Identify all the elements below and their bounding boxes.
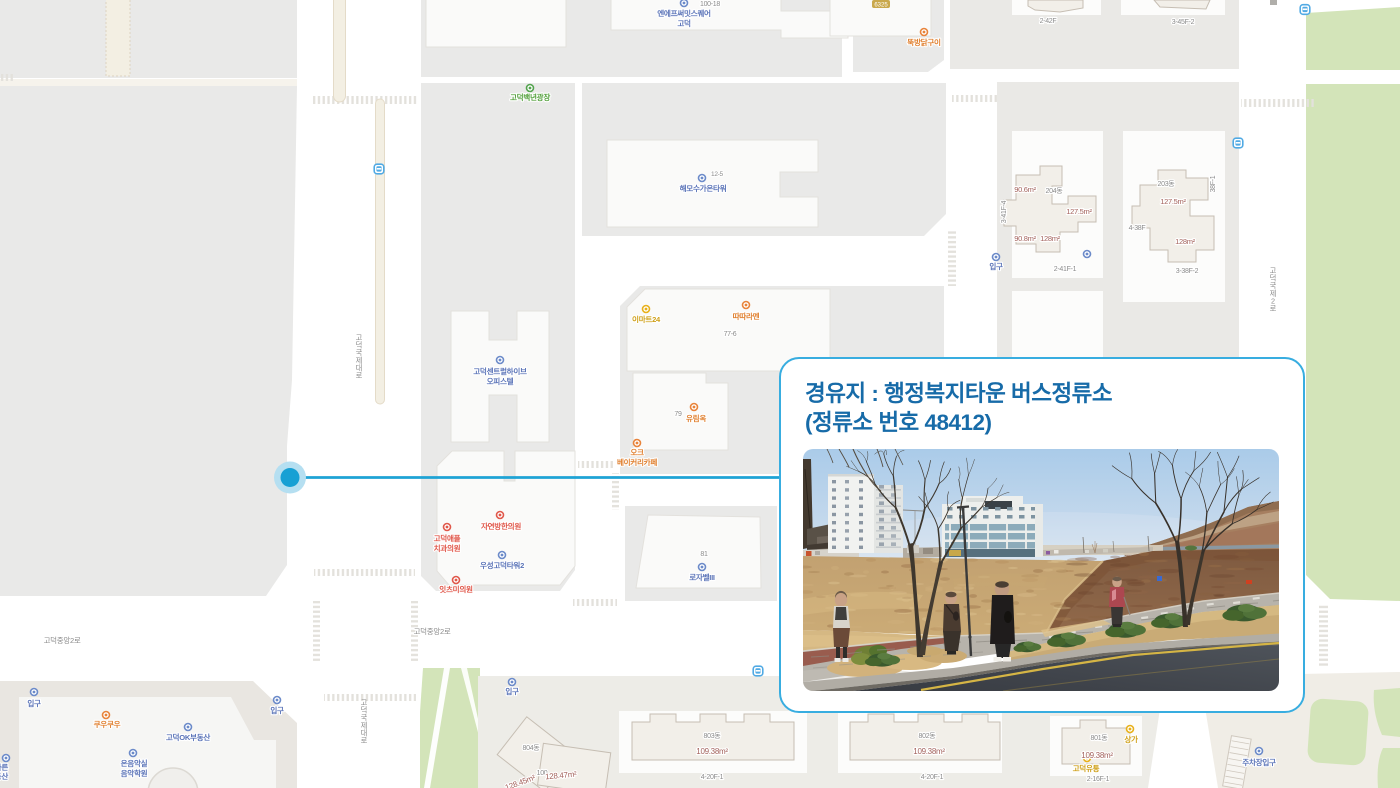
svg-text:베이커리카페: 베이커리카페 xyxy=(617,457,657,467)
svg-text:주차장입구: 주차장입구 xyxy=(1242,757,1276,767)
svg-text:쿠우쿠우: 쿠우쿠우 xyxy=(94,720,121,729)
svg-text:고덕국제대로: 고덕국제대로 xyxy=(356,333,363,380)
svg-text:4-20F-1: 4-20F-1 xyxy=(701,774,724,781)
svg-text:입구: 입구 xyxy=(505,686,519,696)
svg-text:77-6: 77-6 xyxy=(724,331,737,338)
svg-text:고덕애플: 고덕애플 xyxy=(434,533,461,543)
svg-text:801동: 801동 xyxy=(1091,734,1109,742)
svg-text:유림옥: 유림옥 xyxy=(686,413,706,423)
svg-text:치과의원: 치과의원 xyxy=(434,543,461,553)
svg-text:2-16F-1: 2-16F-1 xyxy=(1087,776,1110,783)
svg-text:오피스텔: 오피스텔 xyxy=(487,376,514,386)
svg-text:입구: 입구 xyxy=(989,261,1003,271)
svg-text:109.38m²: 109.38m² xyxy=(913,747,945,756)
svg-text:상가: 상가 xyxy=(1124,734,1138,744)
svg-text:고덕중앙2로: 고덕중앙2로 xyxy=(44,635,81,645)
svg-text:고덕백년광장: 고덕백년광장 xyxy=(510,92,550,102)
svg-text:203동: 203동 xyxy=(1158,180,1176,188)
svg-text:자연방한의원: 자연방한의원 xyxy=(481,521,521,531)
svg-text:잇츠미의원: 잇츠미의원 xyxy=(439,584,473,594)
svg-text:4-38F: 4-38F xyxy=(1129,225,1146,232)
svg-text:로자벨III: 로자벨III xyxy=(689,572,715,582)
svg-text:뚝방닭구이: 뚝방닭구이 xyxy=(907,37,941,47)
svg-text:우성고덕타워2: 우성고덕타워2 xyxy=(480,560,524,570)
svg-text:엔에프써밋스퀘어: 엔에프써밋스퀘어 xyxy=(657,8,711,18)
svg-text:90.8m²: 90.8m² xyxy=(1014,234,1036,243)
svg-text:109.38m²: 109.38m² xyxy=(1081,751,1113,760)
svg-text:고덕: 고덕 xyxy=(677,18,691,28)
svg-text:804동: 804동 xyxy=(523,744,541,752)
svg-text:온음악실: 온음악실 xyxy=(121,758,148,768)
svg-text:2-41F-1: 2-41F-1 xyxy=(1054,266,1077,273)
svg-text:803동: 803동 xyxy=(704,732,722,740)
svg-text:고덕OK부동산: 고덕OK부동산 xyxy=(166,732,211,742)
svg-text:오크: 오크 xyxy=(630,448,644,457)
svg-text:79: 79 xyxy=(674,411,682,418)
svg-text:고덕유통: 고덕유통 xyxy=(1073,763,1100,773)
svg-text:6325: 6325 xyxy=(874,3,888,9)
svg-text:12-5: 12-5 xyxy=(711,171,723,178)
svg-text:38F-1: 38F-1 xyxy=(1210,175,1217,192)
svg-text:4-20F-1: 4-20F-1 xyxy=(921,774,944,781)
svg-text:81: 81 xyxy=(700,551,708,558)
svg-text:802동: 802동 xyxy=(919,732,937,740)
svg-text:입구: 입구 xyxy=(270,705,284,715)
svg-text:고덕국제대로: 고덕국제대로 xyxy=(361,698,368,745)
svg-text:100-18: 100-18 xyxy=(700,1,720,8)
svg-text:고덕중앙2로: 고덕중앙2로 xyxy=(414,626,451,636)
svg-text:따따라멘: 따따라멘 xyxy=(733,311,760,321)
svg-text:3-41F-4: 3-41F-4 xyxy=(1001,200,1008,223)
svg-text:90.6m²: 90.6m² xyxy=(1014,185,1036,194)
svg-text:109.38m²: 109.38m² xyxy=(696,747,728,756)
svg-text:3-45F-2: 3-45F-2 xyxy=(1172,19,1195,26)
svg-text:고덕국제2로: 고덕국제2로 xyxy=(1270,266,1277,313)
svg-text:204동: 204동 xyxy=(1046,187,1064,195)
svg-text:128m²: 128m² xyxy=(1175,237,1196,246)
svg-text:음악학원: 음악학원 xyxy=(121,768,148,778)
svg-text:2-42F: 2-42F xyxy=(1040,18,1057,25)
svg-text:3-38F-2: 3-38F-2 xyxy=(1176,268,1199,275)
svg-text:127.5m²: 127.5m² xyxy=(1066,207,1092,216)
svg-text:128m²: 128m² xyxy=(1040,234,1061,243)
svg-text:해모수가온타워: 해모수가온타워 xyxy=(680,183,727,193)
svg-text:입구: 입구 xyxy=(27,698,41,708)
svg-text:127.5m²: 127.5m² xyxy=(1160,197,1186,206)
svg-text:이마트24: 이마트24 xyxy=(632,314,661,324)
svg-text:릴바른: 릴바른 xyxy=(0,762,8,772)
svg-text:부동산: 부동산 xyxy=(0,771,8,781)
svg-text:고덕센트럴하이브: 고덕센트럴하이브 xyxy=(473,366,527,376)
